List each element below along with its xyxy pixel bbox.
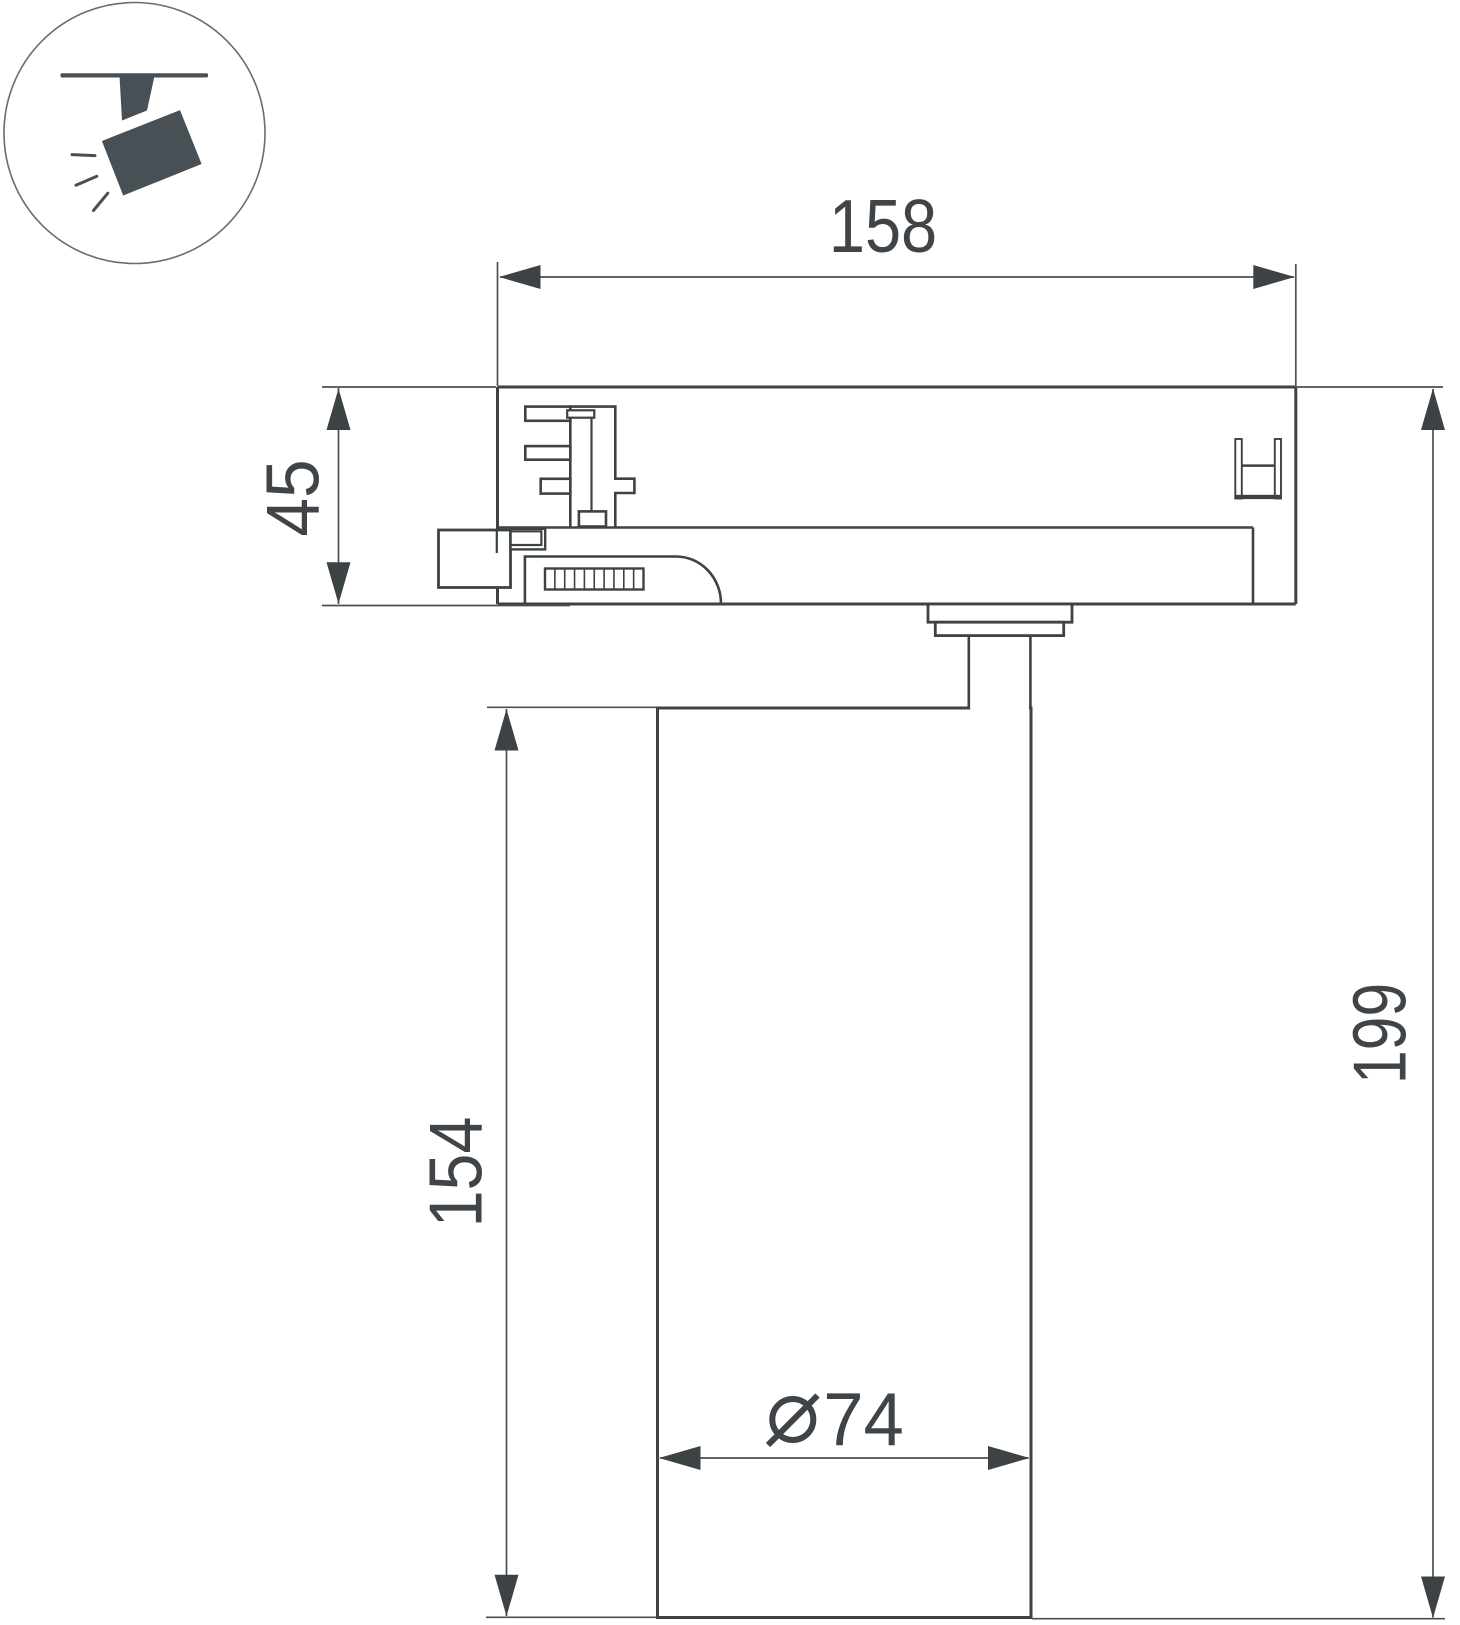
svg-text:74: 74 (823, 1377, 904, 1462)
svg-text:158: 158 (829, 183, 937, 268)
svg-text:45: 45 (251, 459, 335, 536)
svg-text:199: 199 (1337, 983, 1422, 1084)
svg-text:154: 154 (415, 1117, 499, 1228)
